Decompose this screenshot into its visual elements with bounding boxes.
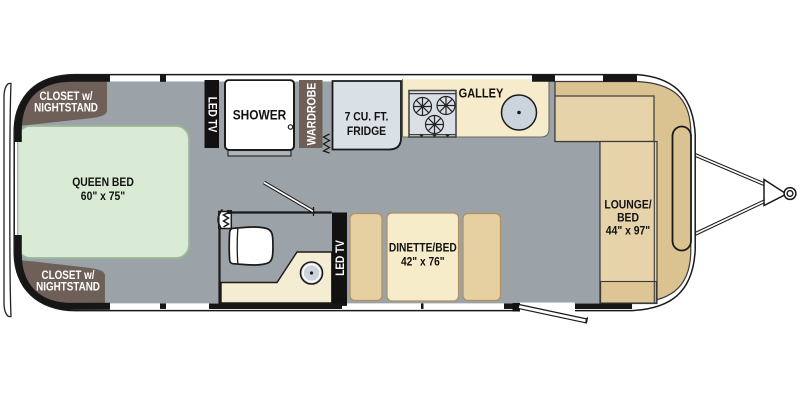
svg-text:42" x 76": 42" x 76" — [401, 256, 445, 269]
svg-text:7 CU. FT.: 7 CU. FT. — [345, 111, 389, 124]
svg-text:GALLEY: GALLEY — [459, 86, 504, 101]
svg-text:LED TV: LED TV — [334, 240, 347, 276]
svg-text:NIGHTSTAND: NIGHTSTAND — [36, 281, 100, 294]
svg-text:LED TV: LED TV — [205, 97, 218, 133]
svg-text:FRIDGE: FRIDGE — [347, 125, 387, 138]
svg-text:WARDROBE: WARDROBE — [306, 82, 319, 145]
svg-text:NIGHTSTAND: NIGHTSTAND — [34, 102, 98, 115]
svg-text:60" x 75": 60" x 75" — [81, 190, 125, 203]
svg-text:QUEEN BED: QUEEN BED — [72, 176, 134, 189]
svg-text:LOUNGE/: LOUNGE/ — [604, 199, 652, 212]
svg-text:SHOWER: SHOWER — [233, 107, 287, 123]
svg-text:BED: BED — [617, 212, 639, 225]
svg-text:44" x 97": 44" x 97" — [606, 225, 650, 238]
svg-text:DINETTE/BED: DINETTE/BED — [389, 242, 457, 255]
